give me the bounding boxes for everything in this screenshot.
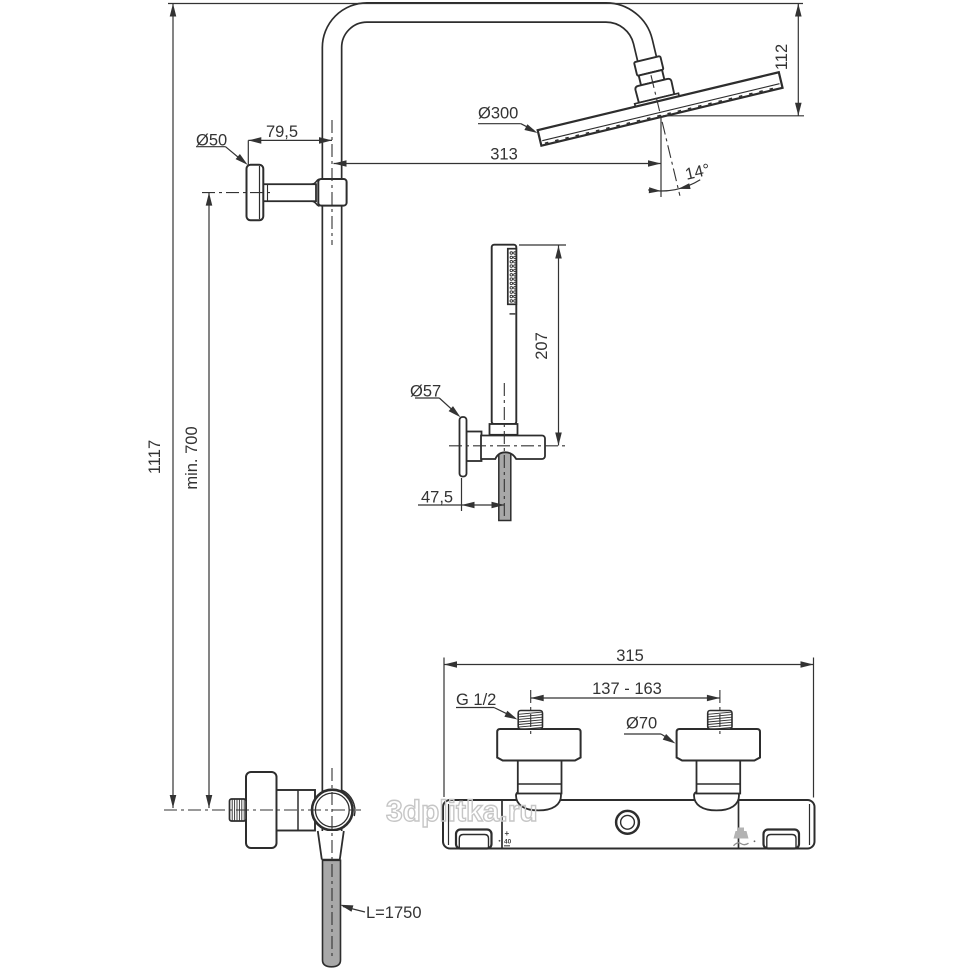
- svg-text:L=1750: L=1750: [366, 904, 422, 922]
- svg-text:min. 700: min. 700: [183, 426, 201, 489]
- svg-text:47,5: 47,5: [421, 489, 453, 507]
- svg-text:Ø300: Ø300: [478, 105, 518, 123]
- svg-text:G 1/2: G 1/2: [456, 691, 496, 709]
- svg-text:40: 40: [504, 839, 512, 846]
- svg-text:+: +: [505, 829, 510, 838]
- svg-text:3dplitka.ru: 3dplitka.ru: [386, 795, 538, 828]
- svg-text:313: 313: [490, 146, 518, 164]
- svg-text:315: 315: [616, 647, 644, 665]
- svg-text:112: 112: [773, 44, 791, 70]
- svg-text:137 - 163: 137 - 163: [592, 680, 662, 698]
- svg-text:Ø70: Ø70: [626, 715, 657, 733]
- svg-text:207: 207: [533, 332, 551, 360]
- svg-text:Ø50: Ø50: [196, 132, 227, 150]
- svg-text:Ø57: Ø57: [410, 383, 441, 401]
- svg-text:1117: 1117: [146, 440, 164, 474]
- svg-text:79,5: 79,5: [266, 123, 298, 141]
